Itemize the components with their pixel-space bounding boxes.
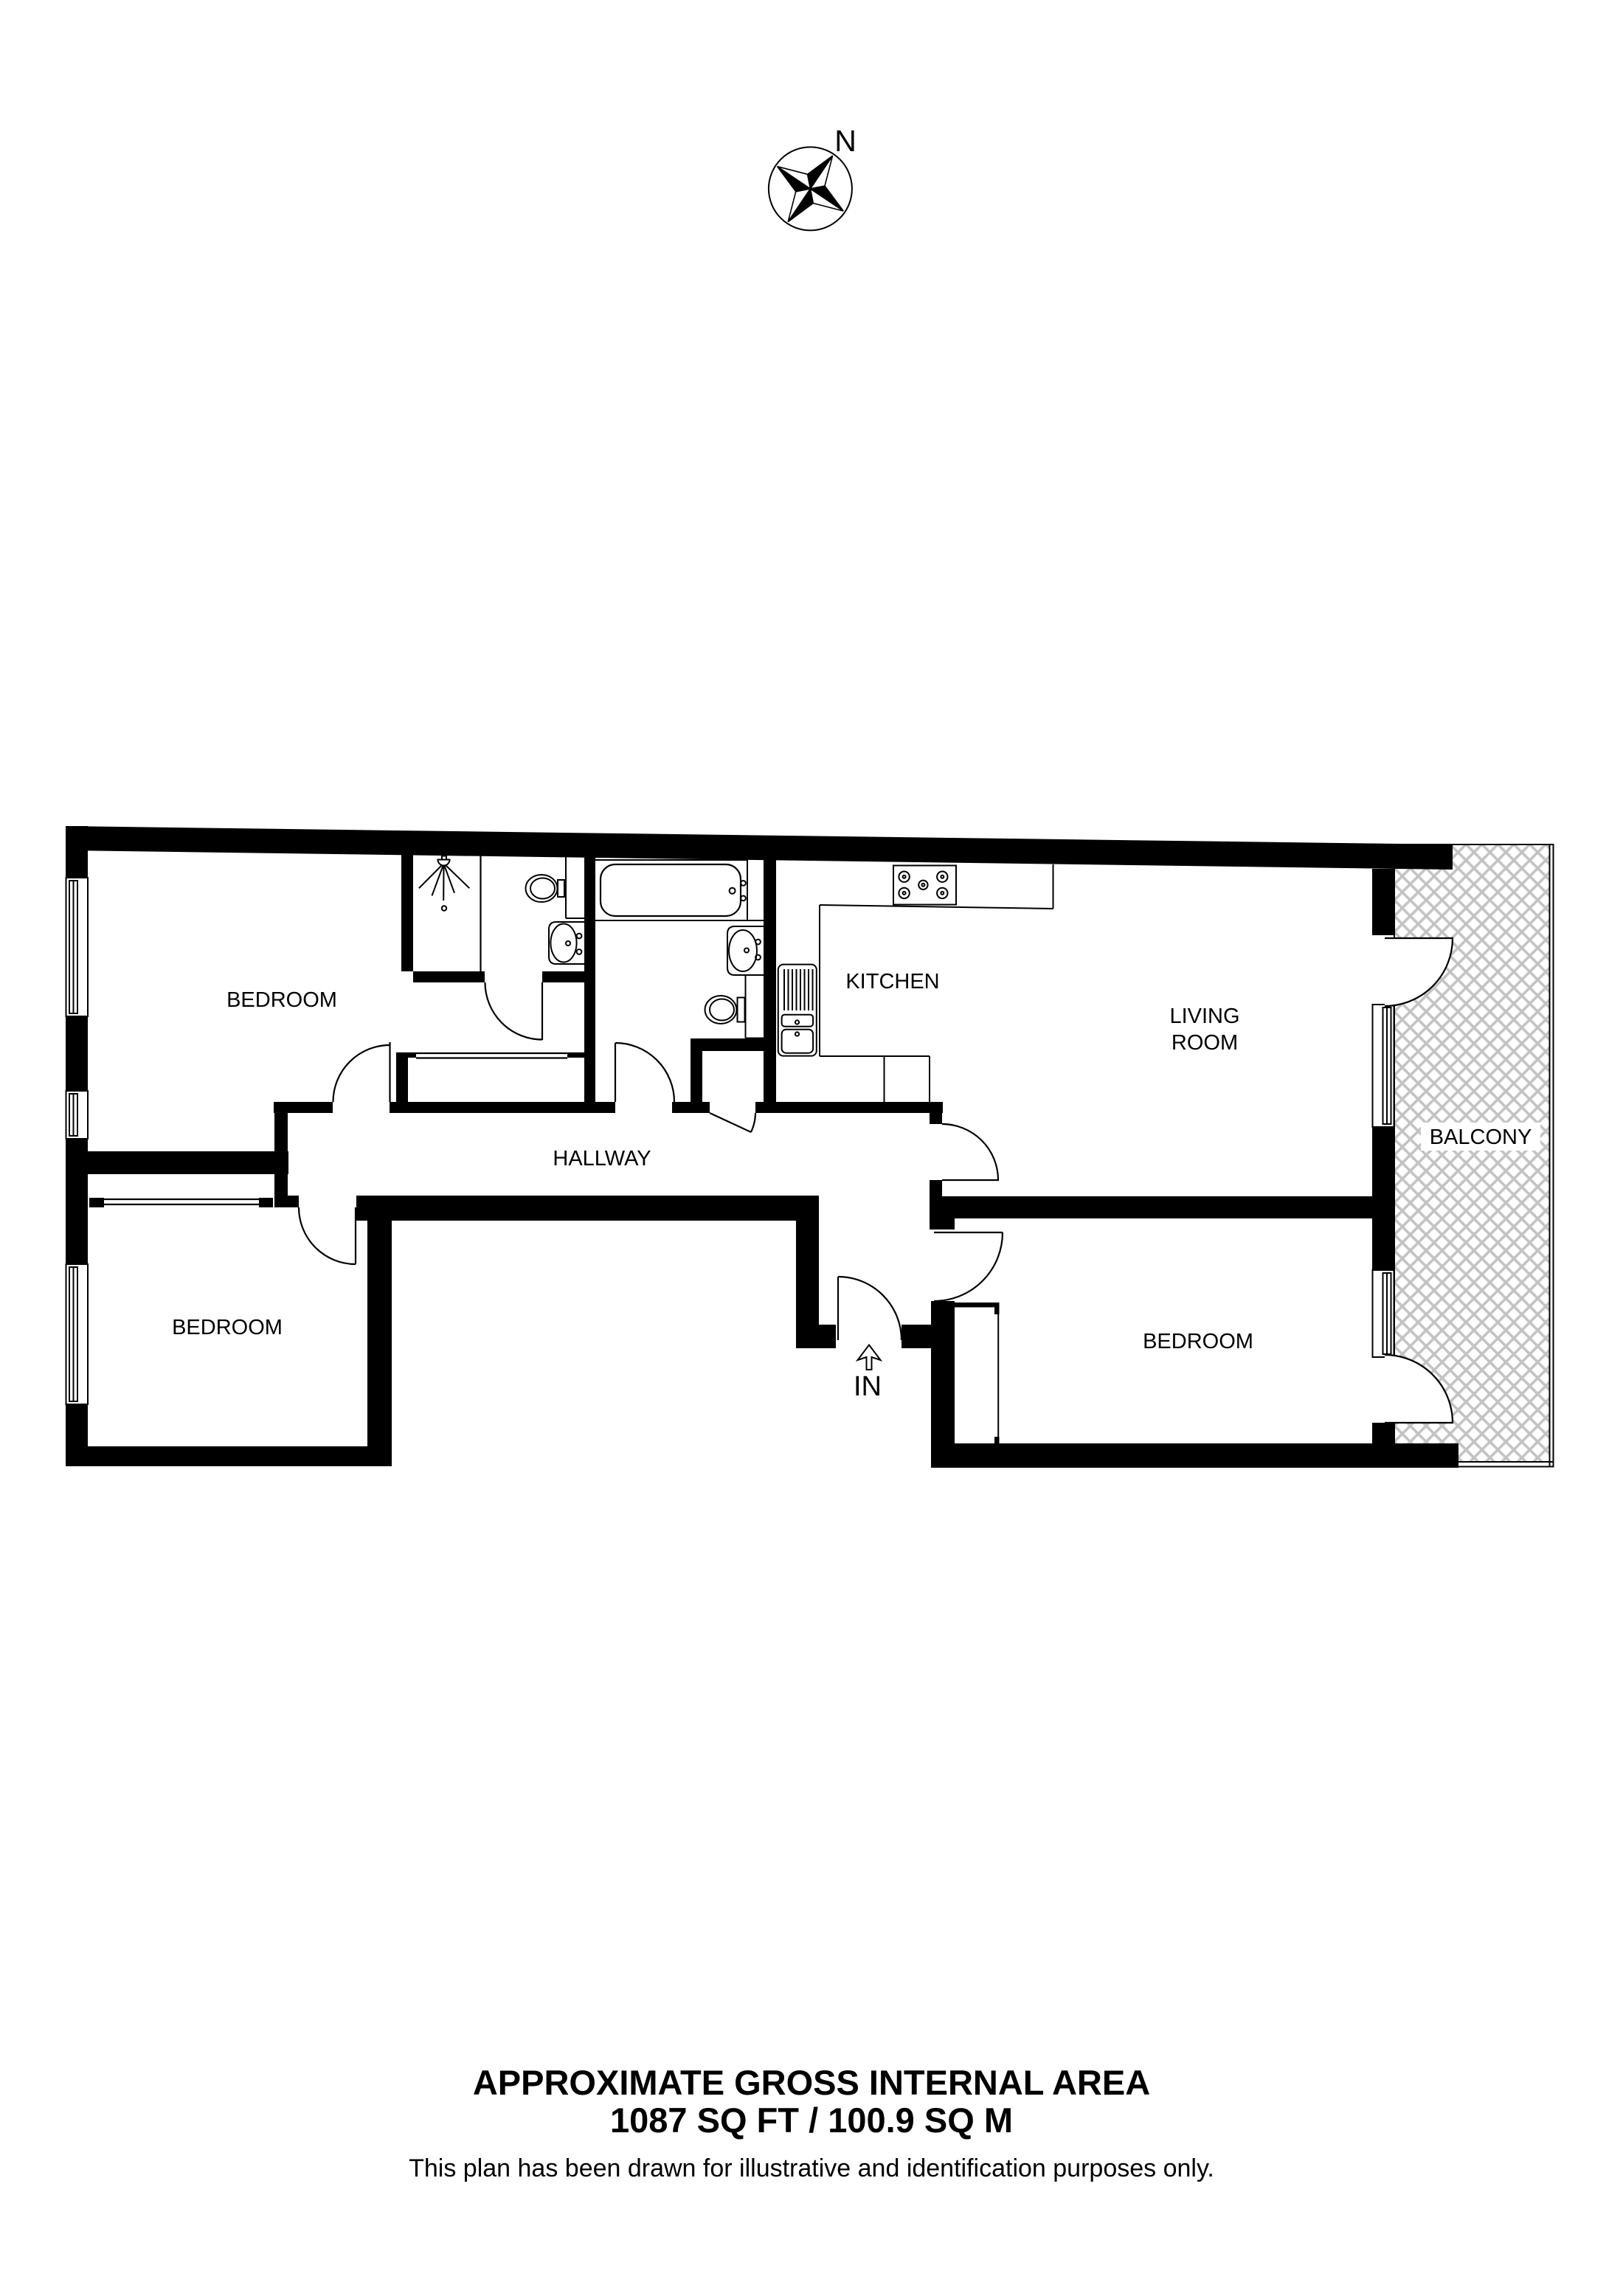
svg-text:BEDROOM: BEDROOM — [226, 988, 337, 1012]
svg-text:This plan has been drawn for i: This plan has been drawn for illustrativ… — [409, 2154, 1214, 2182]
svg-text:1087 SQ FT / 100.9 SQ M: 1087 SQ FT / 100.9 SQ M — [610, 2101, 1013, 2140]
svg-text:HALLWAY: HALLWAY — [553, 1147, 651, 1170]
svg-text:BALCONY: BALCONY — [1430, 1126, 1532, 1149]
svg-text:BEDROOM: BEDROOM — [172, 1316, 283, 1339]
svg-text:LIVING: LIVING — [1169, 1005, 1239, 1028]
svg-text:N: N — [834, 124, 857, 158]
svg-text:ROOM: ROOM — [1172, 1031, 1238, 1055]
svg-text:BEDROOM: BEDROOM — [1143, 1330, 1253, 1353]
svg-text:KITCHEN: KITCHEN — [845, 970, 939, 993]
svg-text:IN: IN — [854, 1371, 882, 1402]
svg-text:APPROXIMATE GROSS INTERNAL ARE: APPROXIMATE GROSS INTERNAL AREA — [473, 2063, 1150, 2102]
